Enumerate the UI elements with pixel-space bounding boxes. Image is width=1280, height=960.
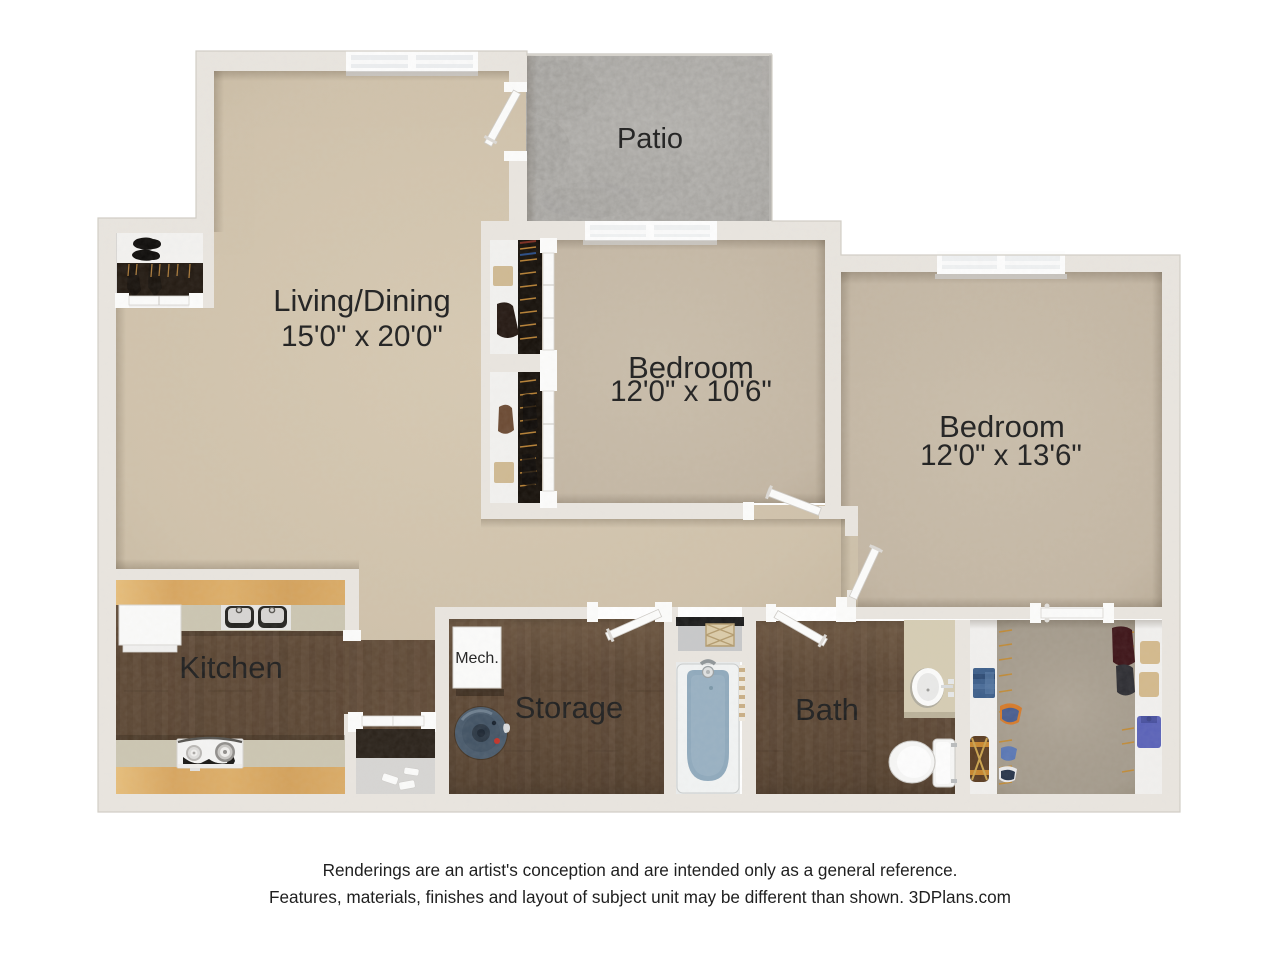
svg-text:Features, materials, finishes: Features, materials, finishes and layout… (269, 887, 1011, 907)
svg-text:Renderings are an artist's con: Renderings are an artist's conception an… (323, 860, 958, 880)
